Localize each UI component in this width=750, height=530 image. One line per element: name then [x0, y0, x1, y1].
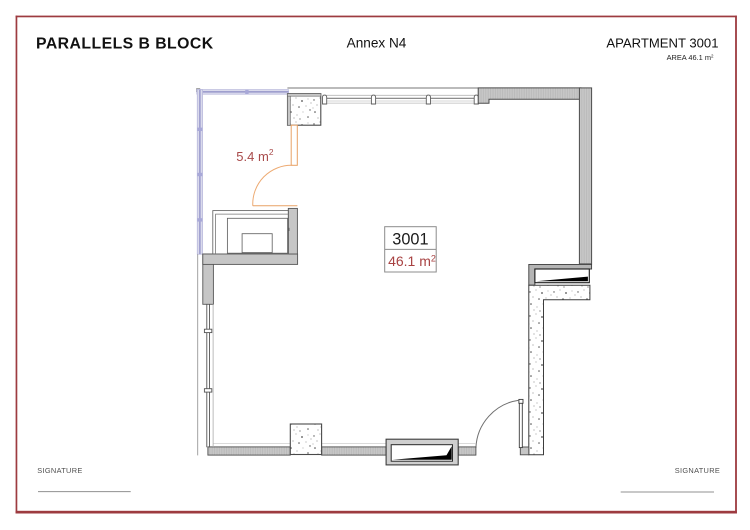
svg-text:SIGNATURE: SIGNATURE	[37, 466, 82, 475]
svg-text:5.4 m2: 5.4 m2	[236, 147, 274, 164]
svg-text:PARALLELS B BLOCK: PARALLELS B BLOCK	[36, 36, 214, 53]
svg-text:SIGNATURE: SIGNATURE	[675, 466, 720, 475]
svg-text:APARTMENT 3001: APARTMENT 3001	[606, 35, 718, 50]
svg-text:3001: 3001	[392, 230, 428, 248]
svg-text:46.1 m2: 46.1 m2	[388, 253, 436, 269]
svg-text:Annex N4: Annex N4	[347, 35, 407, 50]
svg-text:AREA 46.1 m2: AREA 46.1 m2	[667, 53, 714, 62]
